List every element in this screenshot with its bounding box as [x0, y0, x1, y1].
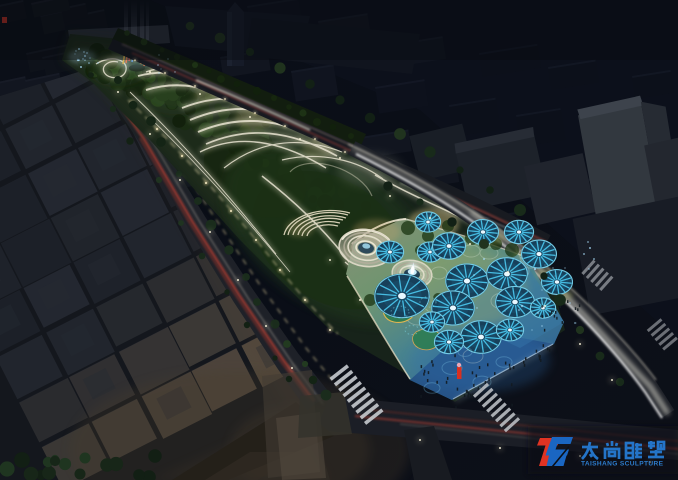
svg-text:TAISHANG SCULPTURE: TAISHANG SCULPTURE: [581, 461, 664, 468]
